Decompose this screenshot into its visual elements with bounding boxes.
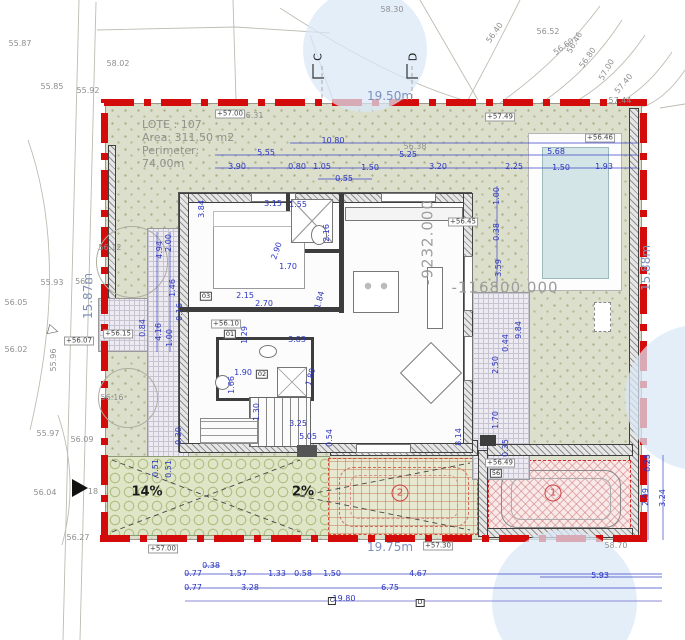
lot-number: LOTE : 107 <box>142 118 234 131</box>
lot-perimeter-label: Perimeter: <box>142 144 234 157</box>
lot-info-block: LOTE : 107 Area: 311.50 m2 Perimeter: 74… <box>142 118 234 170</box>
dimension-lines <box>0 0 685 640</box>
lot-area: Area: 311.50 m2 <box>142 131 234 144</box>
lot-perimeter-value: 74.00m <box>142 157 234 170</box>
site-plan-canvas: ▷ <box>0 0 685 640</box>
